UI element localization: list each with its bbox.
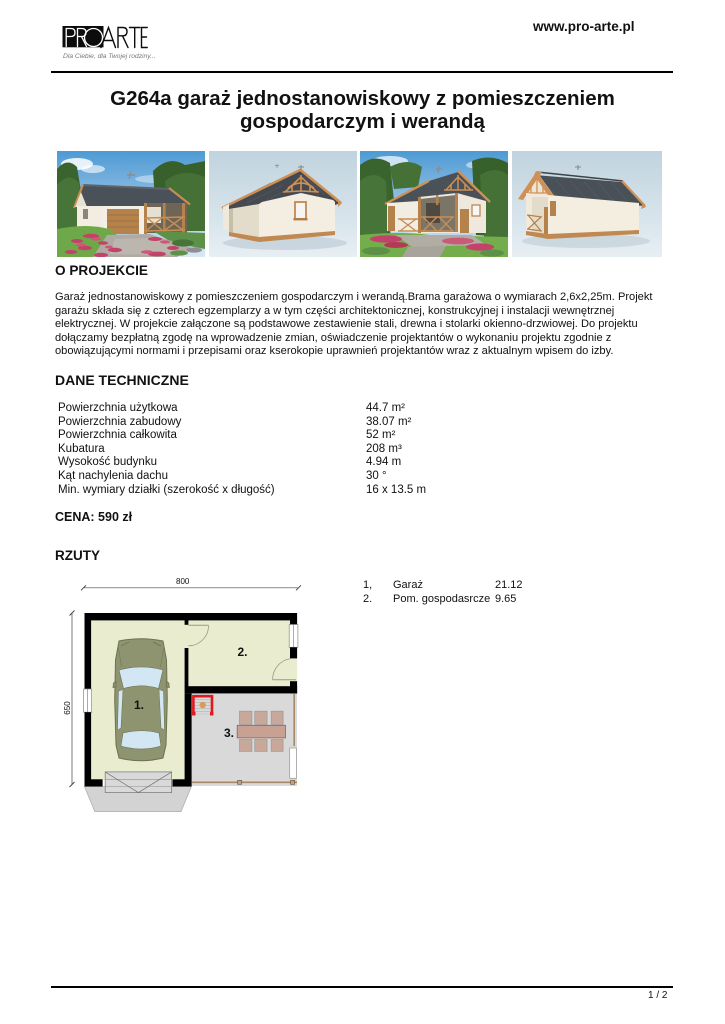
svg-text:3.: 3.	[224, 726, 234, 740]
svg-text:2.: 2.	[238, 645, 248, 659]
svg-text:650: 650	[63, 701, 72, 715]
svg-text:1.: 1.	[134, 698, 144, 712]
